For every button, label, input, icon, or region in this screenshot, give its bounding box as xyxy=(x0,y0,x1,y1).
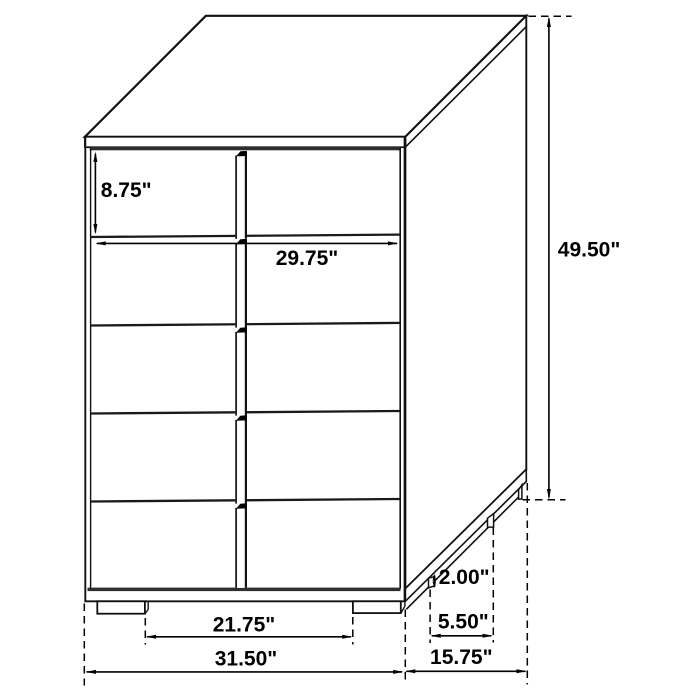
svg-text:5.50": 5.50" xyxy=(438,611,489,634)
svg-text:29.75": 29.75" xyxy=(276,247,339,270)
svg-text:8.75": 8.75" xyxy=(101,179,152,202)
svg-text:2.00": 2.00" xyxy=(439,566,490,589)
svg-text:31.50": 31.50" xyxy=(215,648,278,671)
svg-text:21.75": 21.75" xyxy=(213,613,276,636)
svg-text:15.75": 15.75" xyxy=(430,646,493,669)
svg-text:49.50": 49.50" xyxy=(558,238,621,261)
